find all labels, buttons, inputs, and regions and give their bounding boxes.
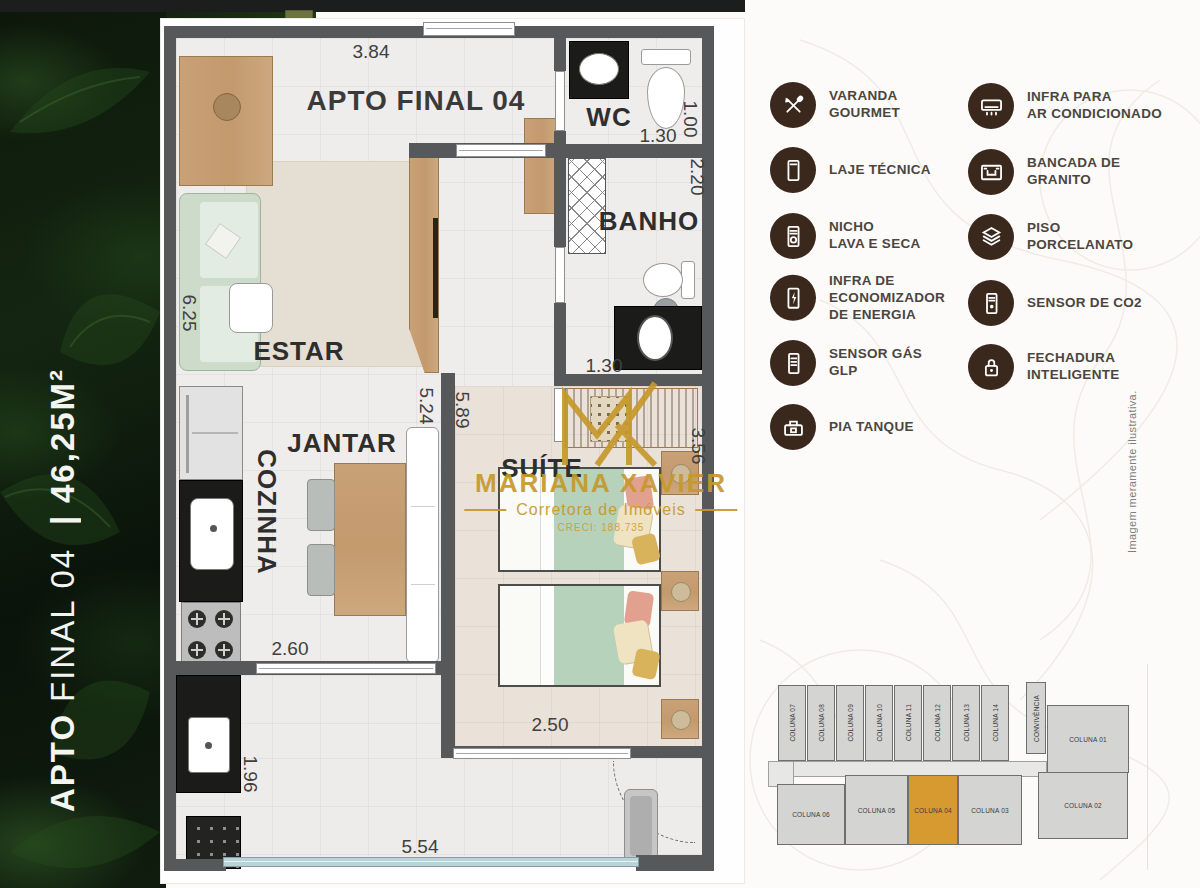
building-unit-label: COLUNA 08 (818, 704, 825, 742)
apto-text: APTO (44, 713, 82, 812)
subtitle-line-left (464, 509, 506, 511)
building-unit: COLUNA 01 (1047, 705, 1129, 773)
water-heater (624, 789, 658, 863)
nightstand (661, 699, 699, 739)
building-unit: COLUNA 03 (958, 775, 1022, 845)
dim-banho-height: 2.20 (686, 159, 708, 196)
legend-item-label: BANCADA DEGRANITO (1027, 155, 1120, 189)
watermark-creci: CRECI: 188.735 (558, 522, 645, 533)
stove (181, 602, 241, 669)
legend-item-label: SENSOR DE CO2 (1027, 295, 1142, 312)
watermark-name: MARIANA XAVIER (475, 468, 727, 499)
sensor-gas-glp-icon (770, 340, 816, 386)
room-wc: WC (586, 102, 631, 133)
watermark-logo-icon (551, 377, 661, 469)
fridge-handle (186, 395, 189, 473)
area-text: 46,25M² (44, 368, 82, 503)
building-unit-label: COLUNA 03 (971, 807, 1009, 814)
building-unit: COLUNA 11 (894, 685, 922, 761)
side-table (229, 283, 273, 333)
building-unit-label: COLUNA 02 (1064, 802, 1102, 809)
final-text (44, 702, 82, 713)
building-unit: COLUNA 14 (981, 685, 1009, 761)
room-banho: BANHO (599, 206, 699, 237)
sensor-co2-icon (968, 280, 1014, 326)
building-unit: CONVIVÊNCIA (1026, 682, 1046, 754)
fridge (179, 386, 243, 480)
bench-cushion-line (411, 506, 435, 507)
legend-item: INFRA DEECONOMIZADORDE ENERGIA (770, 273, 945, 324)
dim-top-width: 3.84 (353, 41, 390, 63)
hall-cabinet (524, 118, 558, 214)
legend-item-label: FECHADURAINTELIGENTE (1027, 350, 1120, 384)
room-estar: ESTAR (253, 336, 344, 367)
sideboard-knob (213, 93, 241, 121)
legend-item-label: INFRA DEECONOMIZADORDE ENERGIA (829, 273, 945, 324)
dim-banho-width: 1.30 (586, 355, 623, 377)
building-key-diagram: COLUNA 07COLUNA 08COLUNA 09COLUNA 10COLU… (768, 678, 1134, 850)
piso-porcelanato-icon (968, 214, 1014, 260)
kitchen-sink (190, 498, 234, 570)
wc-sink (579, 53, 619, 85)
varanda-gourmet-icon (770, 82, 816, 128)
building-unit-label: COLUNA 04 (914, 807, 952, 814)
wall-left (164, 26, 176, 871)
building-unit-label: COLUNA 10 (876, 704, 883, 742)
legend-item: SENSOR GÁSGLP (770, 340, 922, 386)
top-black-bar (0, 0, 745, 12)
bed-sheet-fold (540, 586, 554, 685)
nightstand (661, 571, 699, 611)
legend-item: PISOPORCELANATO (968, 214, 1133, 260)
dining-table (334, 463, 406, 616)
sliding-door-hall (456, 144, 546, 157)
legend-item: SENSOR DE CO2 (968, 280, 1142, 326)
wc-counter (569, 41, 629, 99)
kitchen-counter (179, 480, 243, 602)
dim-cozinha-width: 2.60 (272, 638, 309, 660)
suite-bed-2 (498, 584, 661, 687)
nightstand-lamp (671, 582, 691, 602)
window-top (423, 22, 515, 36)
toilet-tank (681, 261, 695, 299)
legend-item: INFRA PARAAR CONDICIONADO (968, 83, 1162, 129)
pia-tanque-icon (770, 404, 816, 450)
wall-bath-column-d (554, 303, 566, 374)
subtitle-line-right (696, 509, 738, 511)
subtitle-text: Corretora de Imóveis (516, 501, 685, 519)
economizador-energia-icon (770, 275, 816, 321)
balcony-faucet (205, 742, 212, 749)
dining-chair (307, 479, 335, 531)
floorplan-sheet: 3.84 APTO FINAL 04 WC 1.30 1.00 2.20 BAN… (160, 18, 745, 884)
banho-toilet (641, 259, 697, 301)
banho-door (555, 247, 565, 303)
wall-bath-column-c (554, 158, 566, 247)
building-unit-label: COLUNA 07 (789, 704, 796, 742)
building-unit: COLUNA 12 (923, 685, 951, 761)
window-kitchen (256, 663, 436, 674)
legend-item-label: PIA TANQUE (829, 419, 914, 436)
bed-blanket (552, 586, 624, 685)
disclaimer-vertical-text: Imagem meramente ilustrativa. (1126, 368, 1138, 553)
tv-panel (409, 151, 439, 373)
watermark: MARIANA XAVIER Corretora de Imóveis CREC… (451, 377, 751, 542)
building-unit: COLUNA 07 (778, 685, 806, 761)
legend-item: LAJE TÉCNICA (770, 147, 931, 193)
building-unit: COLUNA 04 (908, 775, 958, 845)
building-unit: COLUNA 08 (807, 685, 835, 761)
dim-bottom-width: 5.54 (402, 836, 439, 858)
nightstand-lamp (671, 710, 691, 730)
building-unit: COLUNA 06 (777, 784, 845, 845)
leaf-illustration (0, 12, 166, 888)
sideboard (179, 56, 273, 186)
building-unit: COLUNA 13 (952, 685, 980, 761)
building-unit-label: COLUNA 13 (963, 704, 970, 742)
balcony-counter (176, 675, 241, 793)
tv-screen (433, 218, 438, 318)
legend-item-label: PISOPORCELANATO (1027, 220, 1133, 254)
building-unit: COLUNA 09 (836, 685, 864, 761)
panel-edge-line (1147, 664, 1148, 870)
building-unit-label: CONVIVÊNCIA (1033, 695, 1040, 742)
nicho-lava-seca-icon (770, 213, 816, 259)
watermark-subtitle: Corretora de Imóveis (464, 501, 737, 519)
dim-wc-height: 1.00 (679, 101, 701, 138)
dining-bench (406, 427, 439, 663)
dim-divider-left: 5.24 (415, 388, 437, 425)
dining-chair (307, 544, 335, 596)
wall-bath-column-a (554, 38, 566, 71)
legend-item-label: NICHOLAVA E SECA (829, 219, 921, 253)
building-unit-label: COLUNA 14 (992, 704, 999, 742)
wall-bottom-right (636, 855, 714, 871)
toilet-bowl (643, 263, 683, 297)
building-unit: COLUNA 10 (865, 685, 893, 761)
wc-door (555, 71, 565, 131)
building-unit-label: COLUNA 05 (858, 807, 896, 814)
building-unit-label: COLUNA 01 (1069, 736, 1107, 743)
wall-bottom-left (164, 859, 226, 871)
building-unit: COLUNA 05 (845, 775, 908, 845)
kitchen-faucet (210, 525, 217, 532)
window-suite (453, 748, 631, 759)
bancada-granito-icon (968, 149, 1014, 195)
plan-title: APTO FINAL 04 (307, 85, 526, 117)
fechadura-inteligente-icon (968, 344, 1014, 390)
building-unit-label: COLUNA 11 (905, 704, 912, 741)
building-unit: COLUNA 02 (1038, 772, 1128, 839)
toilet-tank (641, 49, 691, 65)
dim-wc-width: 1.30 (640, 125, 677, 147)
separator-text: | (44, 514, 82, 525)
legend-item-label: VARANDAGOURMET (829, 88, 900, 122)
banho-counter (614, 306, 702, 370)
wall-wc-bottom (554, 144, 714, 158)
dim-estar-height: 6.25 (178, 295, 200, 332)
banho-sink (637, 315, 673, 361)
bench-cushion-line (411, 584, 435, 585)
legend-item: VARANDAGOURMET (770, 82, 900, 128)
legend-item: FECHADURAINTELIGENTE (968, 344, 1120, 390)
building-unit-label: COLUNA 06 (792, 811, 830, 818)
legend-item: NICHOLAVA E SECA (770, 213, 921, 259)
dim-suite-width: 2.50 (532, 714, 569, 736)
dim-varanda-height: 1.96 (239, 756, 261, 793)
legend-item-label: LAJE TÉCNICA (829, 162, 931, 179)
heater-inner (630, 796, 652, 856)
balcony-glass-railing (223, 857, 639, 867)
legend-item: BANCADA DEGRANITO (968, 149, 1120, 195)
building-unit-label: COLUNA 09 (847, 704, 854, 742)
left-leaf-panel: APTO FINAL 04 | 46,25M² (0, 12, 166, 888)
room-cozinha: COZINHA (251, 449, 282, 574)
sofa (179, 193, 261, 371)
legend-item: PIA TANQUE (770, 404, 914, 450)
ar-condicionado-icon (968, 83, 1014, 129)
laje-tecnica-icon (770, 147, 816, 193)
room-jantar: JANTAR (287, 428, 397, 459)
legend-item-label: SENSOR GÁSGLP (829, 346, 922, 380)
apartment-title-vertical: APTO FINAL 04 | 46,25M² (44, 142, 82, 812)
building-unit-label: COLUNA 12 (934, 704, 941, 742)
legend-item-label: INFRA PARAAR CONDICIONADO (1027, 89, 1162, 123)
fridge-divider (192, 432, 238, 434)
flyer-canvas: APTO FINAL 04 | 46,25M² (0, 0, 1200, 888)
bed-pillow-mustard (631, 648, 660, 680)
